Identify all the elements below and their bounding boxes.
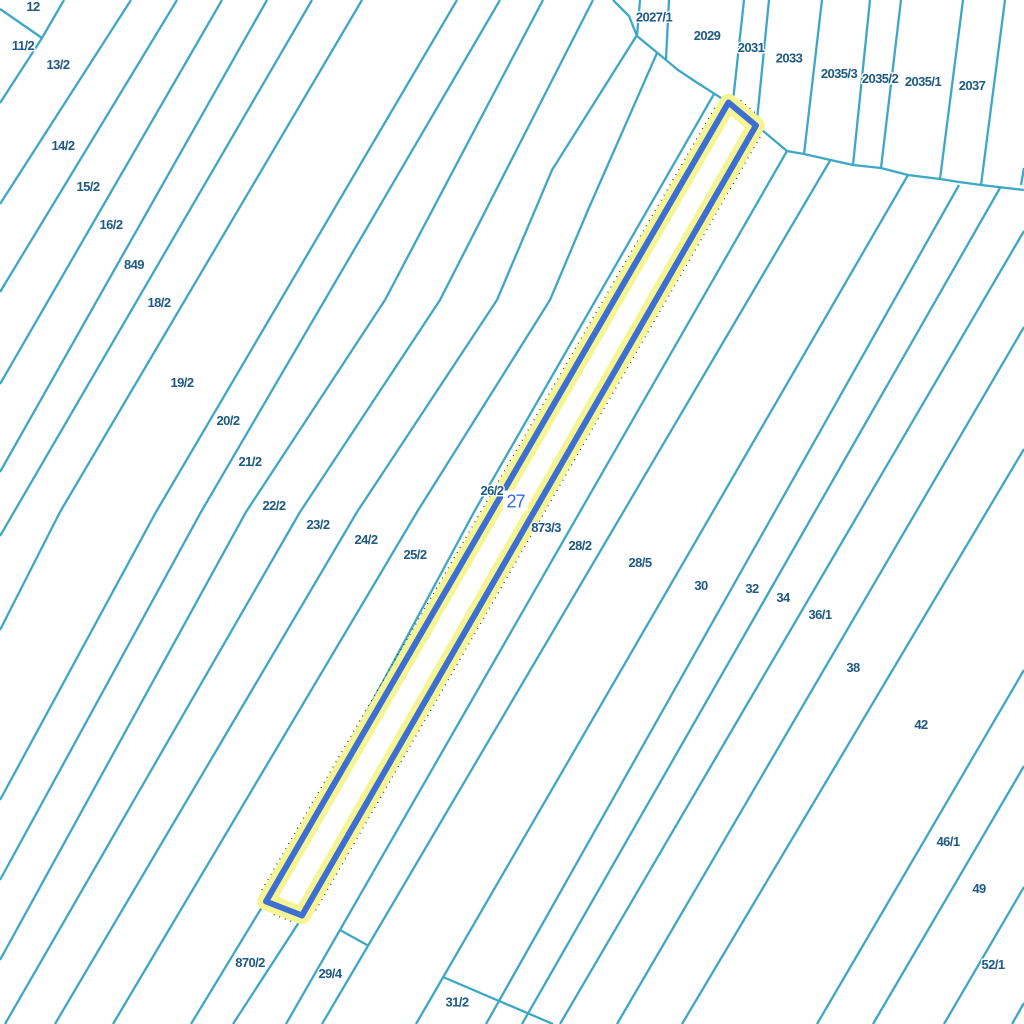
svg-text:42: 42 [914, 717, 928, 732]
svg-text:23/2: 23/2 [307, 517, 330, 532]
svg-text:19/2: 19/2 [171, 375, 194, 390]
svg-text:2035/1: 2035/1 [905, 74, 942, 89]
svg-text:46/1: 46/1 [937, 834, 960, 849]
svg-text:873/3: 873/3 [531, 520, 561, 535]
svg-text:29/4: 29/4 [319, 966, 343, 981]
svg-text:25/2: 25/2 [404, 547, 427, 562]
svg-text:20/2: 20/2 [217, 413, 240, 428]
svg-text:2031: 2031 [738, 40, 765, 55]
svg-text:2035/3: 2035/3 [821, 66, 858, 81]
svg-text:18/2: 18/2 [148, 295, 171, 310]
svg-text:30: 30 [694, 578, 708, 593]
svg-text:870/2: 870/2 [235, 955, 265, 970]
svg-text:34: 34 [776, 590, 791, 605]
svg-text:32: 32 [745, 581, 759, 596]
svg-text:2033: 2033 [776, 51, 803, 66]
svg-text:15/2: 15/2 [77, 179, 100, 194]
svg-text:12: 12 [26, 0, 40, 14]
svg-text:28/5: 28/5 [629, 555, 652, 570]
svg-text:2037: 2037 [959, 78, 986, 93]
svg-text:22/2: 22/2 [263, 498, 286, 513]
svg-text:2029: 2029 [694, 28, 721, 43]
svg-text:36/1: 36/1 [809, 607, 832, 622]
svg-text:2035/2: 2035/2 [862, 71, 899, 86]
svg-text:38: 38 [846, 660, 860, 675]
svg-text:11/2: 11/2 [12, 38, 35, 53]
svg-text:52/1: 52/1 [982, 957, 1005, 972]
svg-text:21/2: 21/2 [239, 454, 262, 469]
svg-text:26/2: 26/2 [481, 483, 504, 498]
svg-text:14/2: 14/2 [52, 138, 75, 153]
svg-text:49: 49 [972, 881, 986, 896]
svg-text:31/2: 31/2 [446, 995, 469, 1010]
svg-text:849: 849 [124, 257, 144, 272]
svg-text:13/2: 13/2 [47, 57, 70, 72]
svg-text:2027/1: 2027/1 [636, 10, 673, 25]
svg-text:24/2: 24/2 [355, 532, 378, 547]
svg-text:16/2: 16/2 [100, 217, 123, 232]
svg-text:28/2: 28/2 [569, 538, 592, 553]
svg-text:27: 27 [506, 492, 525, 512]
